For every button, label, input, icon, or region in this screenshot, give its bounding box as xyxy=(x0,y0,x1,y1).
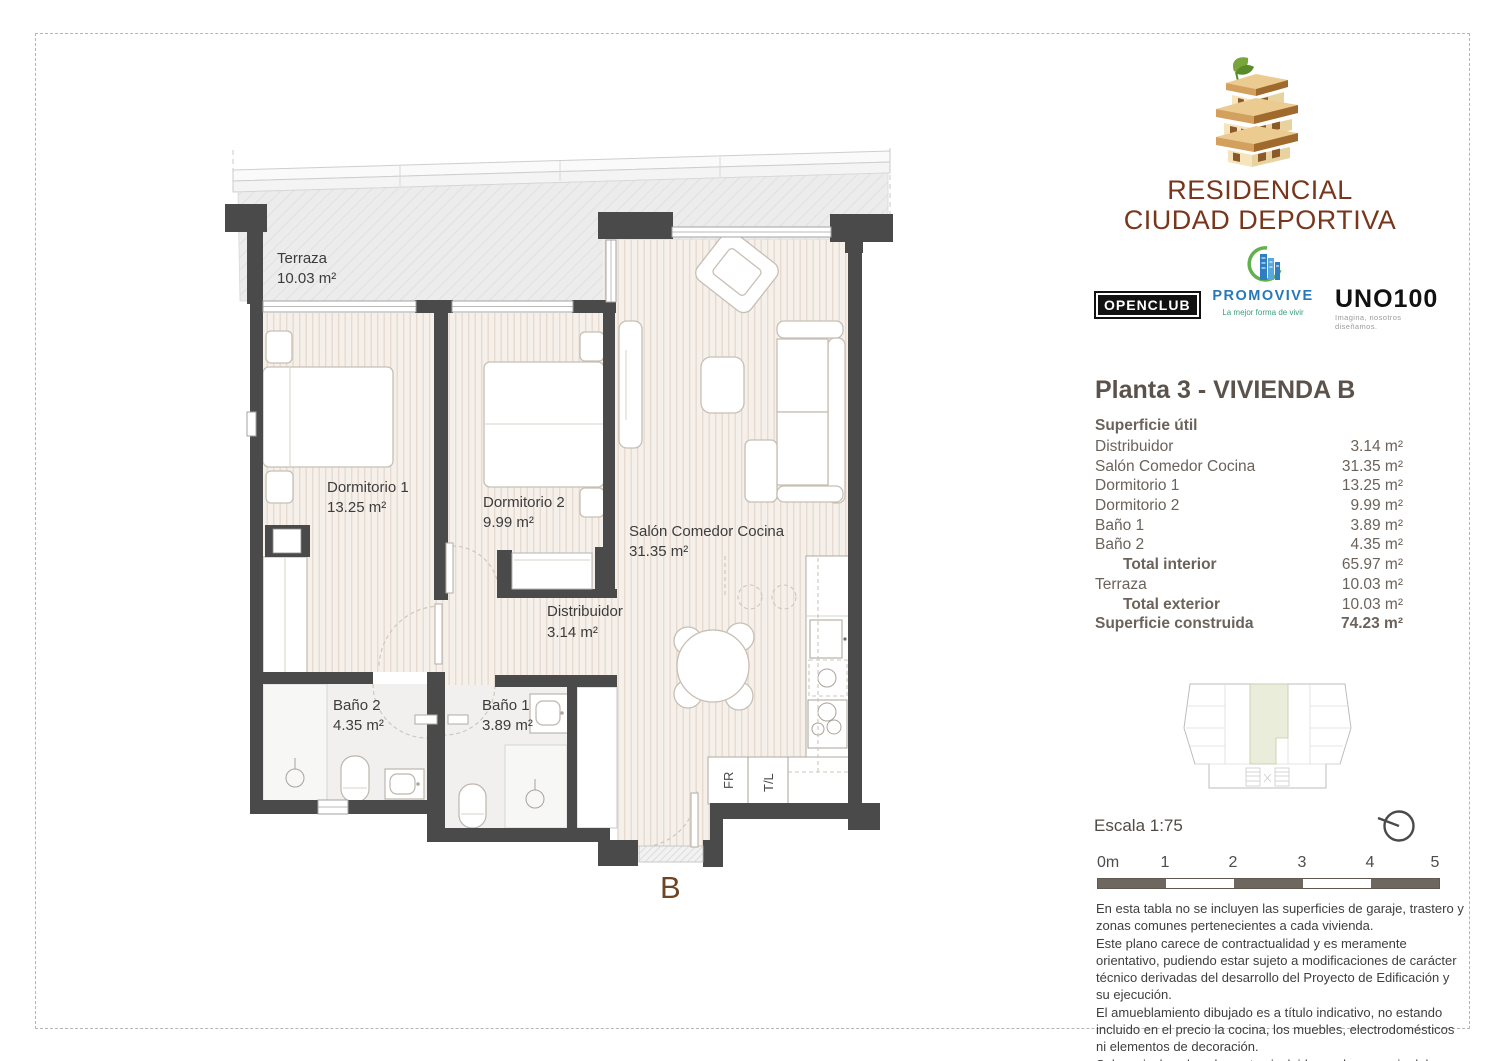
promovive-tagline: La mejor forma de vivir xyxy=(1208,308,1318,317)
surface-table: Superficie útil Distribuidor3.14 m² Saló… xyxy=(1095,417,1403,634)
compass-icon xyxy=(1375,802,1421,850)
room-label-dormitorio1: Dormitorio 1 xyxy=(327,479,409,496)
info-panel: RESIDENCIAL CIUDAD DEPORTIVA OPENCLUB xyxy=(1080,40,1480,1040)
room-area-salon: 31.35 m² xyxy=(629,543,688,560)
table-row: Baño 24.35 m² xyxy=(1095,535,1403,555)
uno100-tagline: Imagina, nosotros diseñamos. xyxy=(1335,313,1445,331)
table-row: Baño 13.89 m² xyxy=(1095,516,1403,536)
promovive-logo: PROMOVIVE La mejor forma de vivir xyxy=(1208,245,1318,317)
scalebar-ticks: 0m 1 2 3 4 5 xyxy=(1097,854,1438,874)
disclaimer-notes: En esta tabla no se incluyen las superfi… xyxy=(1096,900,1464,1061)
plan-sheet-page: FR T/L xyxy=(0,0,1500,1061)
room-area-distribuidor: 3.14 m² xyxy=(547,624,598,641)
room-area-bano1: 3.89 m² xyxy=(482,717,533,734)
room-area-bano2: 4.35 m² xyxy=(333,717,384,734)
sheet-title: Planta 3 - VIVIENDA B xyxy=(1095,376,1355,405)
table-row: Distribuidor3.14 m² xyxy=(1095,437,1403,457)
brand-building-logo xyxy=(1200,55,1310,167)
table-row: Dormitorio 113.25 m² xyxy=(1095,476,1403,496)
room-area-terraza: 10.03 m² xyxy=(277,270,336,287)
brand-title: RESIDENCIAL CIUDAD DEPORTIVA xyxy=(1080,175,1440,235)
room-area-dormitorio1: 13.25 m² xyxy=(327,499,386,516)
unit-letter: B xyxy=(660,870,681,905)
brand-title-line1: RESIDENCIAL xyxy=(1080,175,1440,205)
uno100-logo: UNO100 Imagina, nosotros diseñamos. xyxy=(1335,287,1445,331)
room-label-salon: Salón Comedor Cocina xyxy=(629,523,785,540)
promovive-icon xyxy=(1243,245,1283,287)
uno100-label: UNO100 xyxy=(1335,287,1445,311)
table-row-total-exterior: Total exterior10.03 m² xyxy=(1095,595,1403,615)
scale-label: Escala 1:75 xyxy=(1094,816,1183,836)
partner-logos: OPENCLUB PROMOVIVE La mejor forma de viv… xyxy=(1080,245,1460,340)
table-row: Terraza10.03 m² xyxy=(1095,575,1403,595)
appliance-label-fridge: FR xyxy=(721,772,736,789)
room-label-bano2: Baño 2 xyxy=(333,697,381,714)
building-key-plan xyxy=(1180,676,1355,801)
table-row: Dormitorio 29.99 m² xyxy=(1095,496,1403,516)
brand-title-line2: CIUDAD DEPORTIVA xyxy=(1080,205,1440,235)
room-area-dormitorio2: 9.99 m² xyxy=(483,514,534,531)
surface-table-header: Superficie útil xyxy=(1095,417,1403,437)
appliance-label-laundry: T/L xyxy=(761,773,776,792)
note: El amueblamiento dibujado es a título in… xyxy=(1096,1004,1464,1056)
promovive-label: PROMOVIVE xyxy=(1208,288,1318,304)
room-label-terraza: Terraza xyxy=(277,250,328,267)
floor-plan: FR T/L xyxy=(0,0,1040,1061)
room-label-distribuidor: Distribuidor xyxy=(547,603,623,620)
scalebar xyxy=(1097,878,1440,889)
room-label-dormitorio2: Dormitorio 2 xyxy=(483,494,565,511)
room-label-bano1: Baño 1 xyxy=(482,697,530,714)
table-row: Salón Comedor Cocina31.35 m² xyxy=(1095,457,1403,477)
table-row-superficie-construida: Superficie construida74.23 m² xyxy=(1095,614,1403,634)
note: En esta tabla no se incluyen las superfi… xyxy=(1096,900,1464,935)
table-row-total-interior: Total interior65.97 m² xyxy=(1095,555,1403,575)
note: Solo se incluye los elementos incluidos … xyxy=(1096,1056,1464,1061)
openclub-logo: OPENCLUB xyxy=(1094,291,1201,319)
openclub-label: OPENCLUB xyxy=(1098,295,1197,315)
note: Este plano carece de contractualidad y e… xyxy=(1096,935,1464,1004)
